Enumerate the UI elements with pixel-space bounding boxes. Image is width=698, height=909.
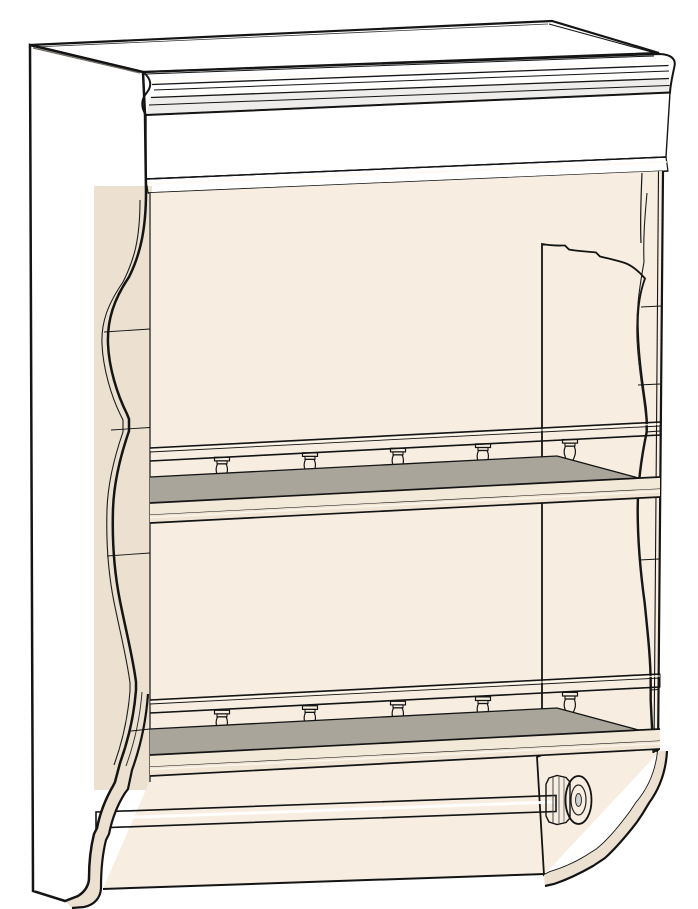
render-viewport[interactable] xyxy=(0,0,698,909)
crown-molding xyxy=(142,54,674,115)
shelf-unit-model xyxy=(0,0,698,909)
back-panel xyxy=(103,171,663,889)
